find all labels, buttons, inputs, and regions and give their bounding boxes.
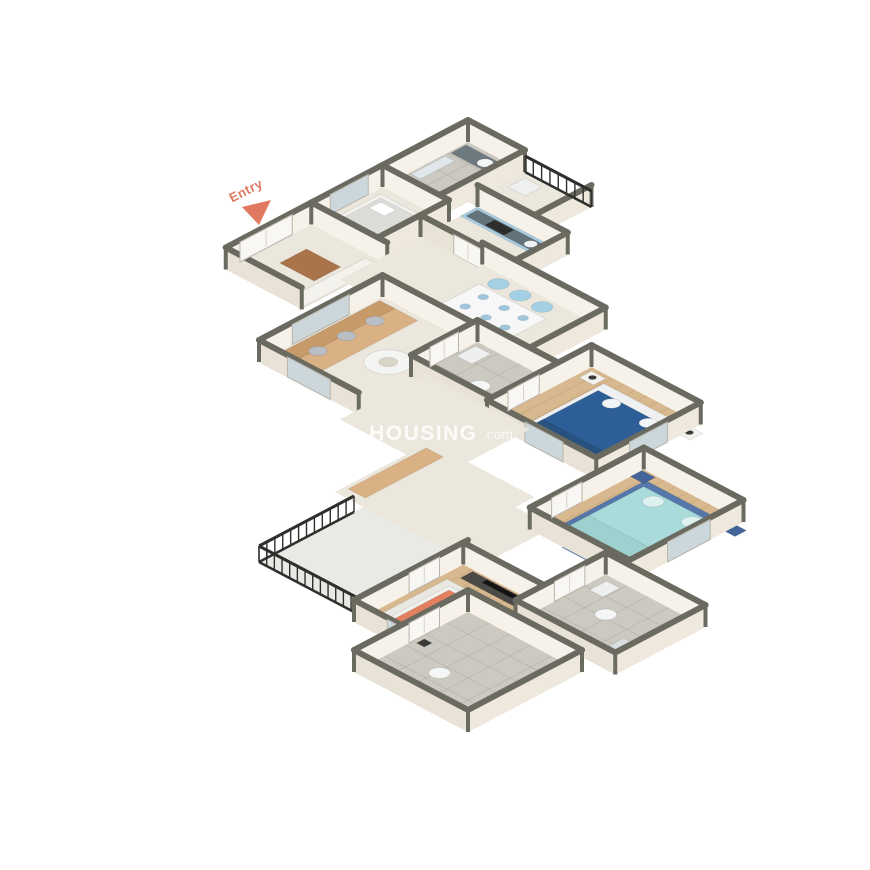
watermark: ⌂ HOUSING .com [352,422,513,446]
watermark-house-icon: ⌂ [352,424,364,444]
room-bedroom-2 [530,448,747,583]
floorplan-stage: Entry ⌂ HOUSING .com [0,0,870,870]
watermark-tld: .com [483,426,513,442]
watermark-brand: HOUSING [369,422,478,446]
